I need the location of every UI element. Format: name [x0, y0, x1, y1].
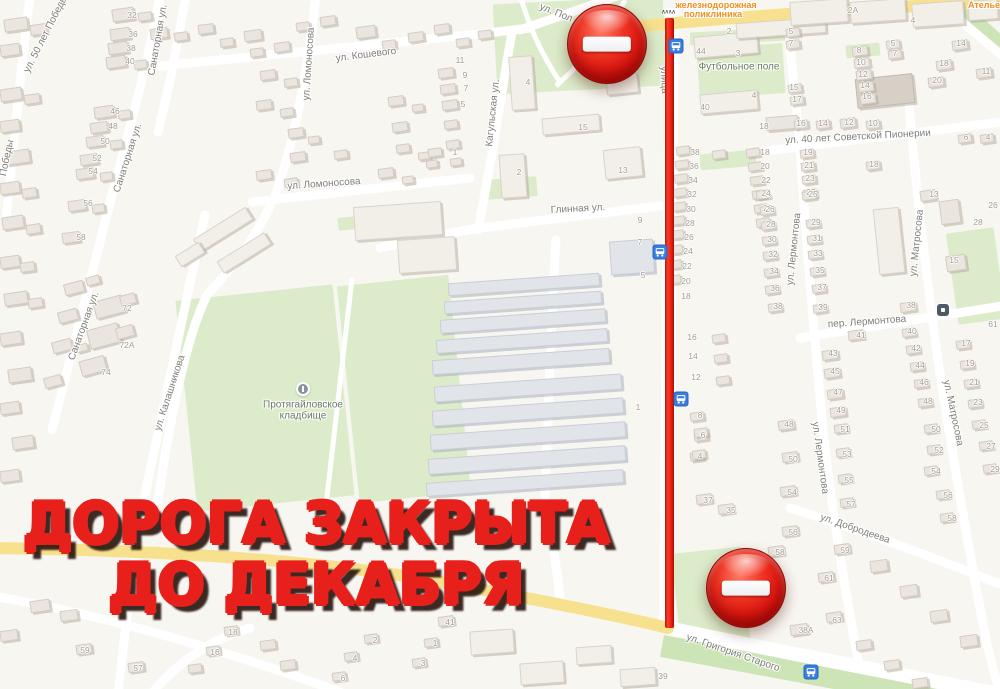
no-entry-sign-icon — [567, 4, 647, 84]
sign-gloss — [582, 10, 632, 33]
banner-line-2: ДО ДЕКАБРЯ — [108, 555, 524, 616]
sign-bar — [583, 37, 631, 52]
map-screenshot: ул. 50 лет ПобедыПобедыСанаторная ул.Сан… — [0, 0, 1000, 689]
road-closed-banner: ДОРОГА ЗАКРЫТА ДО ДЕКАБРЯ — [0, 494, 632, 616]
no-entry-sign-icon — [706, 548, 786, 628]
sign-bar — [722, 581, 770, 596]
sign-gloss — [721, 554, 771, 577]
banner-line-1: ДОРОГА ЗАКРЫТА — [23, 494, 610, 555]
